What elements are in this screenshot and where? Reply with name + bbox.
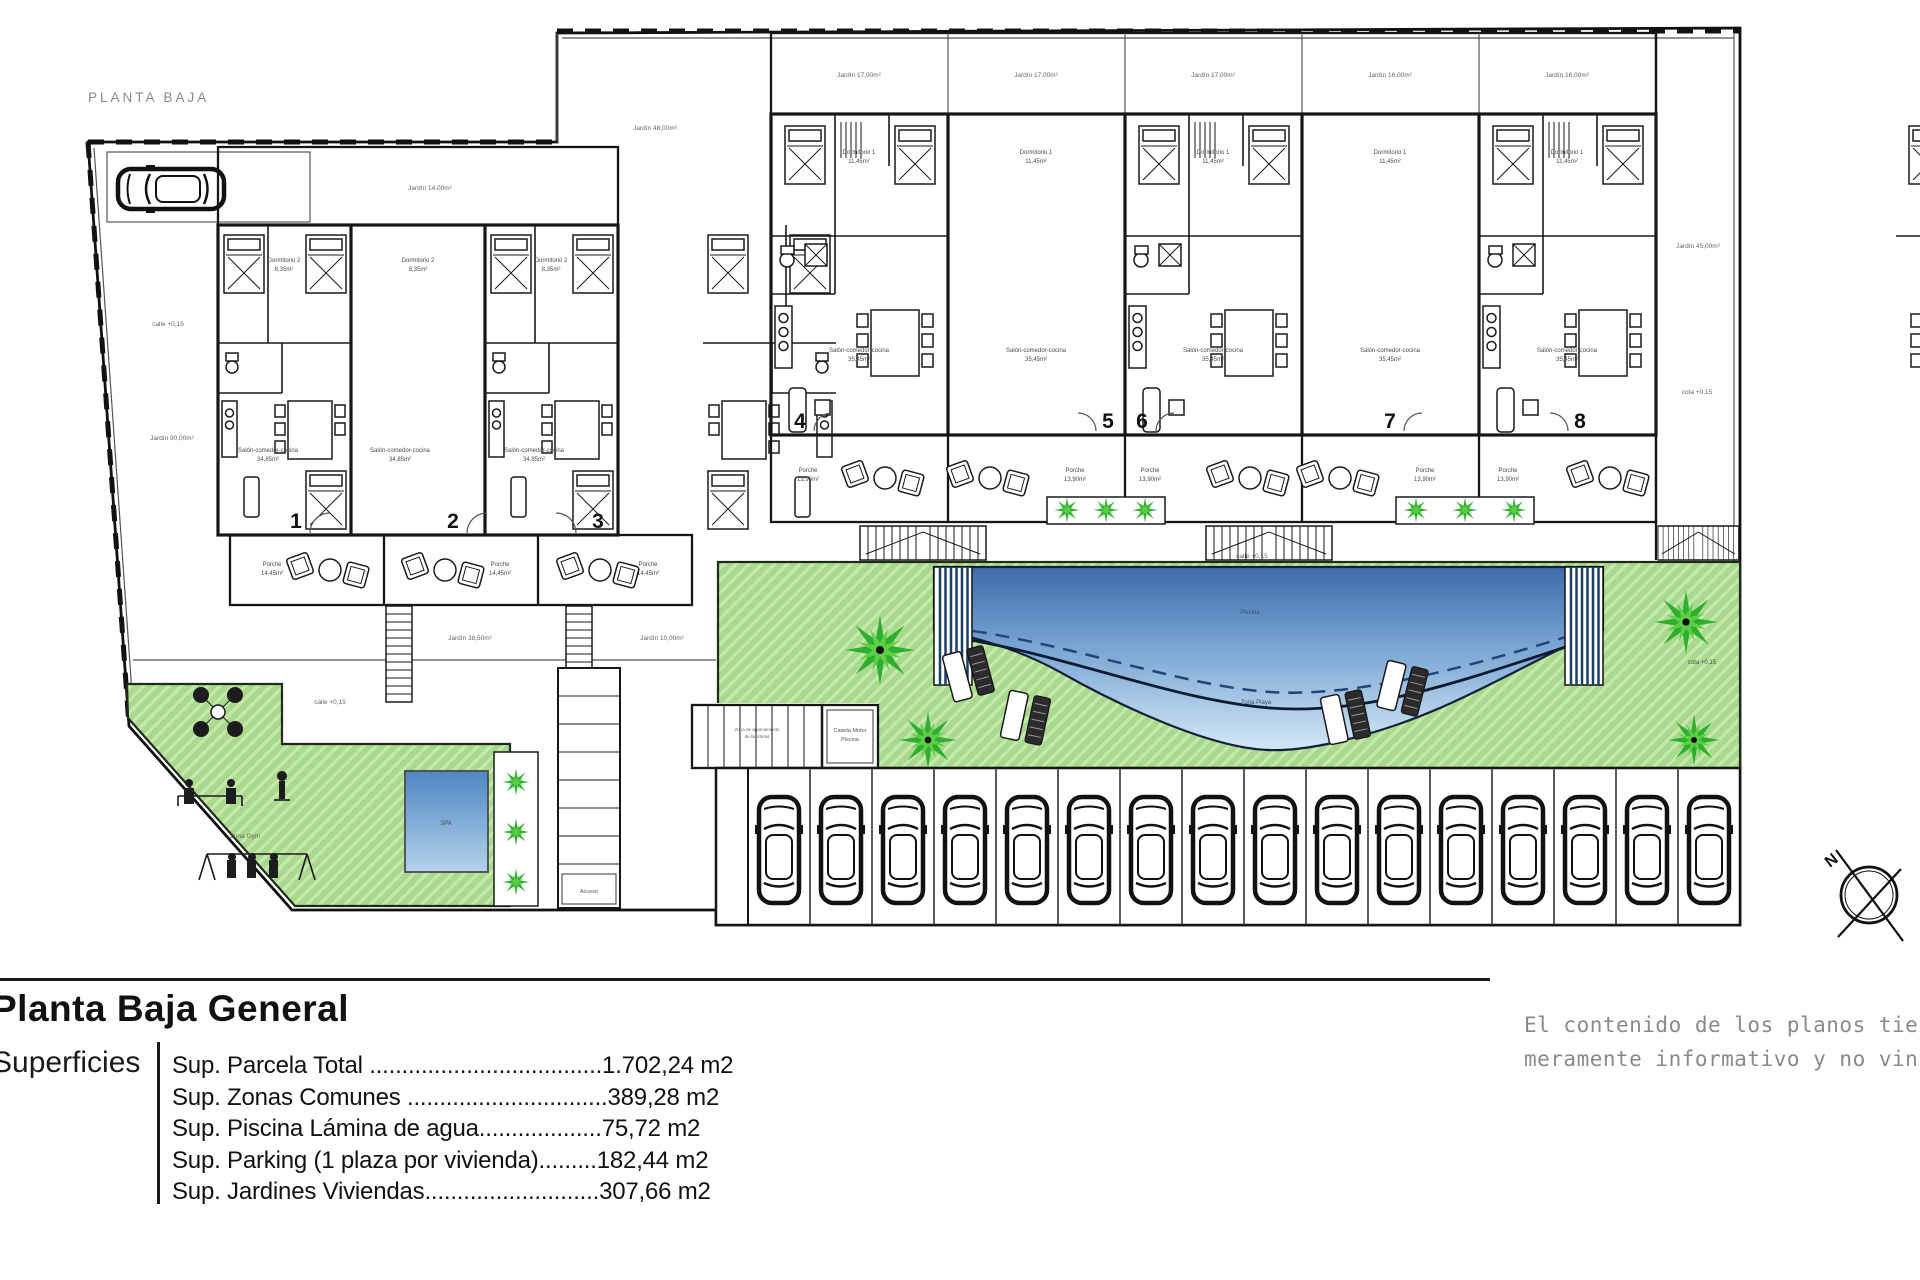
svg-text:35,45m²: 35,45m² — [1202, 357, 1224, 363]
site-plan-drawing: PLANTA BAJA Piscina Zona Playa — [0, 0, 1920, 1010]
jardin-38-label: Jardín 38,50m² — [448, 635, 493, 642]
svg-text:Porche: Porche — [490, 562, 510, 568]
spa-planter — [494, 752, 538, 906]
superficies-table: Sup. Parcela Total .....................… — [172, 1050, 733, 1208]
porch-planters — [1047, 497, 1534, 524]
svg-text:Porche: Porche — [1140, 468, 1160, 474]
svg-text:35,45m²: 35,45m² — [1025, 357, 1047, 363]
disclaimer-line-1: El contenido de los planos tiene valor — [1524, 1008, 1920, 1042]
svg-text:13,90m²: 13,90m² — [797, 477, 819, 483]
svg-text:13,90m²: 13,90m² — [1414, 477, 1436, 483]
superficies-row: Sup. Parcela Total .....................… — [172, 1050, 733, 1082]
svg-text:Piscina: Piscina — [841, 737, 860, 743]
svg-text:Jardín 17,00m²: Jardín 17,00m² — [1014, 72, 1059, 79]
svg-text:Zona de aparcamiento: Zona de aparcamiento — [734, 727, 780, 732]
cota-label-lawn: cota +0,15 — [1688, 660, 1717, 666]
svg-text:Porche: Porche — [1065, 468, 1085, 474]
legend-divider-line — [0, 978, 1490, 981]
svg-text:Porche: Porche — [638, 562, 658, 568]
svg-text:13,90m²: 13,90m² — [1139, 477, 1161, 483]
svg-text:11,45m²: 11,45m² — [1202, 159, 1224, 165]
svg-text:Dormitorio 1: Dormitorio 1 — [1020, 150, 1053, 156]
svg-text:34,85m²: 34,85m² — [257, 457, 279, 463]
planta-baja-label: PLANTA BAJA — [88, 90, 209, 105]
unit-7-number: 7 — [1384, 410, 1396, 433]
svg-text:Salón-comedor-cocina: Salón-comedor-cocina — [1537, 348, 1598, 354]
svg-text:Salón-comedor-cocina: Salón-comedor-cocina — [829, 348, 890, 354]
svg-text:Jardín 16,00m²: Jardín 16,00m² — [1368, 72, 1413, 79]
bike-parking: Zona de aparcamiento de bicicletas — [692, 703, 878, 768]
unit-3-number: 3 — [592, 510, 604, 533]
jardin-48-label: Jardín 48,00m² — [633, 125, 678, 132]
svg-text:Porche: Porche — [1498, 468, 1518, 474]
superficies-row: Sup. Piscina Lámina de agua.............… — [172, 1113, 733, 1145]
svg-text:Dormitorio 1: Dormitorio 1 — [843, 150, 876, 156]
svg-text:Porche: Porche — [798, 468, 818, 474]
unit-2-number: 2 — [447, 510, 459, 533]
svg-text:Dormitorio 1: Dormitorio 1 — [1374, 150, 1407, 156]
svg-text:Salón-comedor-cocina: Salón-comedor-cocina — [1006, 348, 1067, 354]
left-porches: Porche14,45m² Porche14,45m² Porche14,45m… — [230, 535, 692, 605]
svg-text:34,85m²: 34,85m² — [523, 457, 545, 463]
cota-label-strip: cota +0,15 — [1682, 389, 1713, 396]
svg-text:Dormitorio 1: Dormitorio 1 — [1551, 150, 1584, 156]
svg-text:35,45m²: 35,45m² — [1379, 357, 1401, 363]
jardin-45-label: Jardín 45,00m² — [1676, 243, 1721, 250]
calle-label-west: calle +0,15 — [152, 321, 184, 328]
unit-5-number: 5 — [1102, 410, 1114, 433]
svg-text:Dormitorio 2: Dormitorio 2 — [268, 258, 301, 264]
spa-label: SPA — [440, 821, 452, 827]
svg-text:Dormitorio 1: Dormitorio 1 — [1197, 150, 1230, 156]
carport — [107, 152, 310, 222]
disclaimer-line-2: meramente informativo y no vinculante — [1524, 1042, 1920, 1076]
unit-1-number: 1 — [290, 510, 302, 533]
svg-text:34,85m²: 34,85m² — [389, 457, 411, 463]
svg-text:14,45m²: 14,45m² — [261, 571, 283, 577]
zona-playa-label: Zona Playa — [1241, 700, 1272, 706]
unit-6-number: 6 — [1136, 410, 1148, 433]
svg-text:11,45m²: 11,45m² — [1379, 159, 1401, 165]
jardin-90-label: Jardín 90,00m² — [150, 435, 195, 442]
svg-text:Jardín 17,00m²: Jardín 17,00m² — [1191, 72, 1236, 79]
parking-lot — [716, 768, 1740, 925]
svg-text:35,45m²: 35,45m² — [848, 357, 870, 363]
svg-text:14,45m²: 14,45m² — [637, 571, 659, 577]
svg-text:Salón-comedor-cocina: Salón-comedor-cocina — [1360, 348, 1421, 354]
svg-text:13,90m²: 13,90m² — [1497, 477, 1519, 483]
svg-text:8,35m²: 8,35m² — [275, 267, 294, 273]
zona-gym-label: Zona Gym — [230, 833, 260, 840]
compass-rose-icon: N — [1822, 850, 1903, 941]
svg-text:Jardín 17,00m²: Jardín 17,00m² — [837, 72, 882, 79]
superficies-row: Sup. Parking (1 plaza por vivienda).....… — [172, 1145, 733, 1177]
disclaimer-text: El contenido de los planos tiene valor m… — [1524, 1008, 1920, 1076]
svg-text:8,35m²: 8,35m² — [542, 267, 561, 273]
jardin-14-label: Jardín 14,00m² — [408, 185, 453, 192]
svg-text:Porche: Porche — [1415, 468, 1435, 474]
superficies-row: Sup. Zonas Comunes .....................… — [172, 1082, 733, 1114]
superficies-row: Sup. Jardines Viviendas.................… — [172, 1176, 733, 1208]
superficies-label: Superficies — [0, 1046, 140, 1080]
acceso-label: Acceso — [580, 889, 598, 895]
piscina-label: Piscina — [1240, 610, 1260, 616]
svg-text:11,45m²: 11,45m² — [1556, 159, 1578, 165]
legend-heading: Planta Baja General — [0, 988, 349, 1030]
svg-text:8,35m²: 8,35m² — [409, 267, 428, 273]
svg-text:Salón-comedor-cocina: Salón-comedor-cocina — [504, 448, 565, 454]
svg-text:35,45m²: 35,45m² — [1556, 357, 1578, 363]
svg-text:11,45m²: 11,45m² — [848, 159, 870, 165]
svg-text:13,90m²: 13,90m² — [1064, 477, 1086, 483]
pool-deck-right — [1565, 567, 1603, 685]
svg-text:Caseta Motor: Caseta Motor — [833, 728, 866, 734]
right-building: Jardín 17,00m² Jardín 17,00m² Jardín 17,… — [557, 33, 1920, 560]
superficies-divider — [157, 1042, 160, 1204]
storage-column: Acceso — [558, 668, 620, 908]
spa-pool: SPA — [405, 771, 488, 872]
svg-text:Salón-comedor-cocina: Salón-comedor-cocina — [238, 448, 299, 454]
calle-label-center: calle +0,15 — [1236, 553, 1268, 560]
svg-text:Porche: Porche — [262, 562, 282, 568]
jardin-10-label: Jardín 10,00m² — [640, 635, 685, 642]
floor-plan-sheet: PLANTA BAJA Piscina Zona Playa — [0, 0, 1920, 1280]
svg-text:Jardín 16,00m²: Jardín 16,00m² — [1545, 72, 1590, 79]
parked-car-icon — [118, 165, 224, 213]
svg-text:Salón-comedor-cocina: Salón-comedor-cocina — [1183, 348, 1244, 354]
svg-text:de bicicletas: de bicicletas — [745, 734, 771, 739]
unit-4-number: 4 — [794, 410, 806, 433]
unit-8-number: 8 — [1574, 410, 1586, 433]
svg-text:11,45m²: 11,45m² — [1025, 159, 1047, 165]
svg-text:Salón-comedor-cocina: Salón-comedor-cocina — [370, 448, 431, 454]
calle-label-sw: calle +0,15 — [314, 699, 346, 706]
svg-text:14,45m²: 14,45m² — [489, 571, 511, 577]
svg-text:Dormitorio 2: Dormitorio 2 — [535, 258, 568, 264]
right-stairs — [860, 526, 1739, 560]
svg-text:Dormitorio 2: Dormitorio 2 — [402, 258, 435, 264]
